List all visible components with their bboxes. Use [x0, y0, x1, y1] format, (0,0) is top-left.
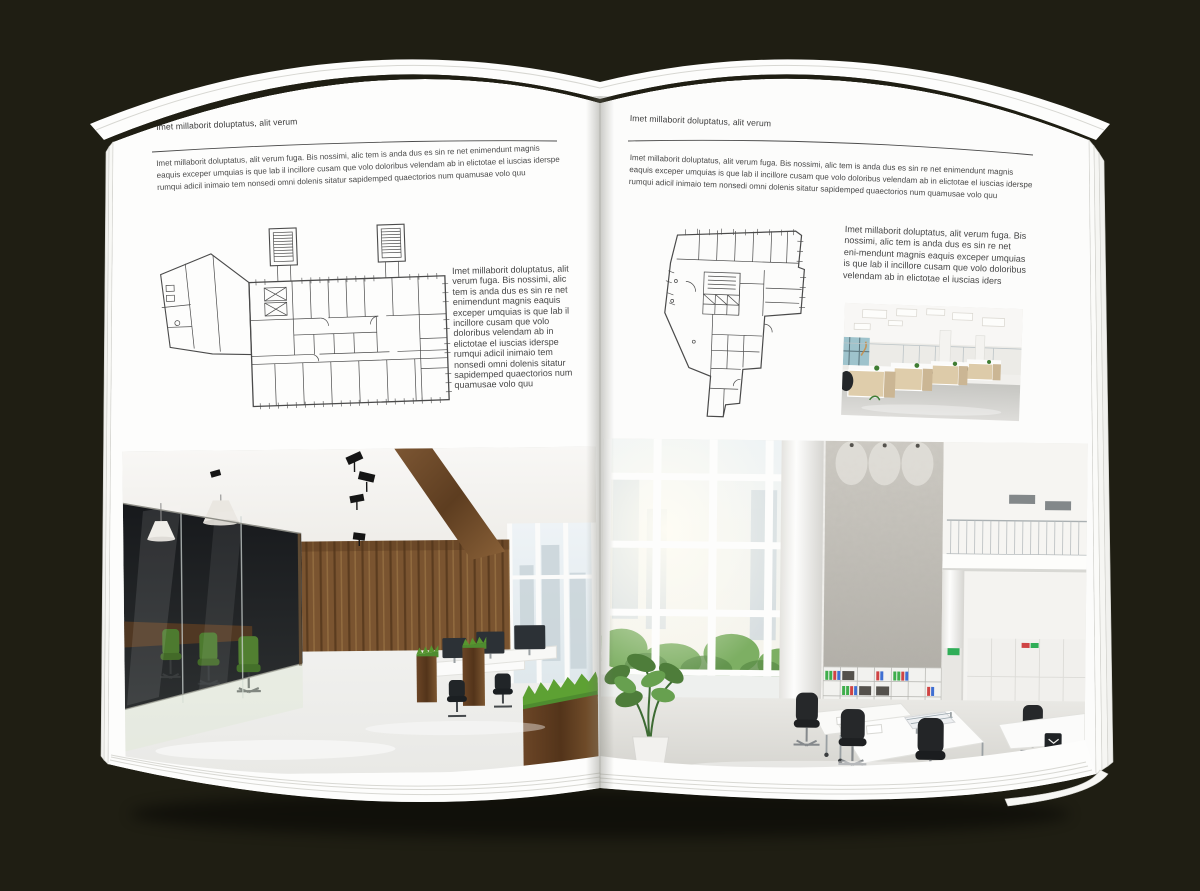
right-page-side-text: Imet millaborit doluptatus, alit verum f… — [843, 224, 1029, 288]
photo-office-workstations — [841, 303, 1023, 421]
floor-plan-left — [150, 218, 454, 414]
concrete-wall — [823, 441, 943, 668]
left-page-side-text: Imet millaborit doluptatus, alit verum f… — [452, 263, 577, 390]
outer-walls — [661, 227, 805, 420]
stair-core — [703, 272, 740, 315]
photo-office-wood-glass — [122, 447, 598, 776]
left-wing-outline — [160, 253, 252, 358]
photo-office-white-atrium — [600, 438, 1087, 775]
exit-sign — [948, 648, 960, 655]
mezzanine — [942, 442, 1087, 574]
stair-towers — [269, 224, 406, 282]
magazine-spread-mockup: Imet millaborit doluptatus, alit verum I… — [0, 0, 1200, 891]
floor-plan-right — [641, 220, 830, 422]
elevator-core — [264, 287, 287, 316]
main-block-outline — [249, 276, 449, 407]
